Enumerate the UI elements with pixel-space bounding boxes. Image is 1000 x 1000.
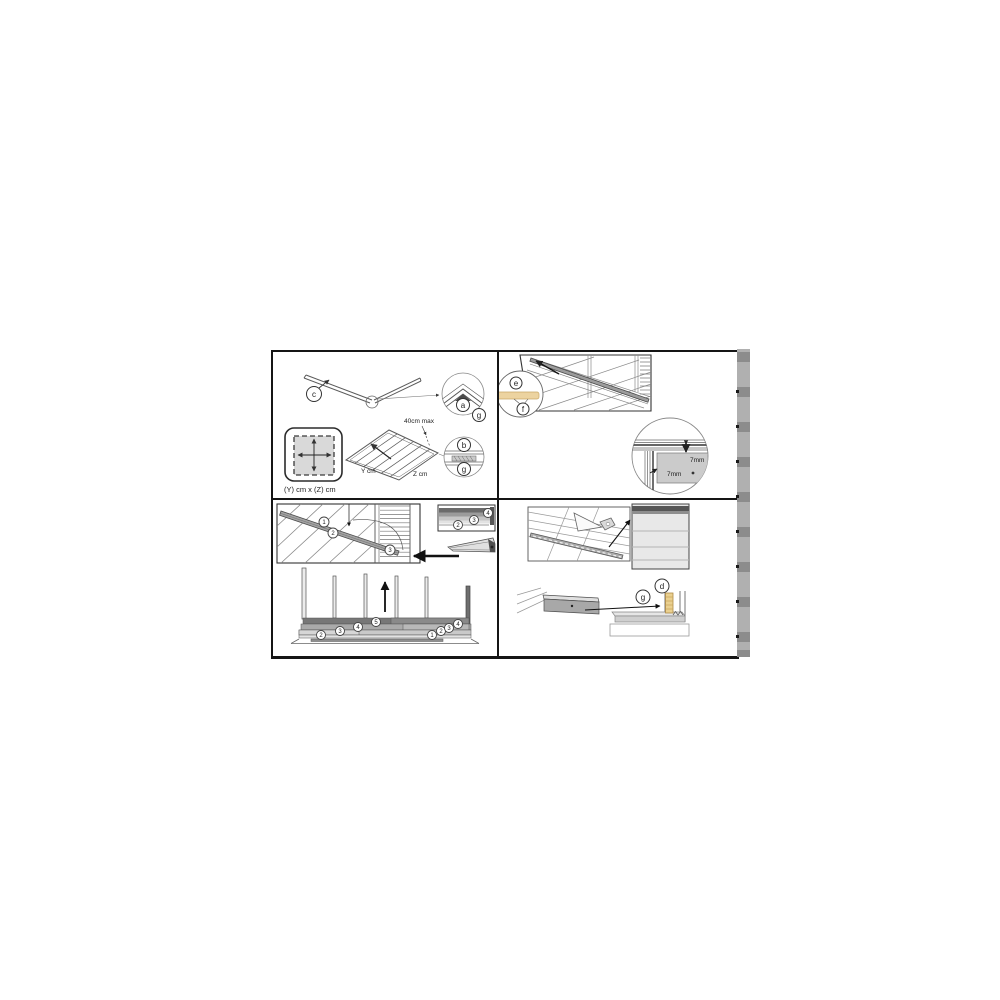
- panel-roof-batten-gap: e f: [499, 352, 737, 500]
- floor-frame-arrow: [371, 444, 391, 459]
- base-size-pictogram: [285, 428, 342, 481]
- edge-dot: [736, 425, 739, 428]
- fascia-board: [543, 595, 599, 614]
- left-step-2: 2: [317, 631, 326, 640]
- callout-g-upper: g: [473, 409, 486, 422]
- strip-step-3: 3: [470, 516, 479, 525]
- roof-apex-beams: [304, 375, 421, 403]
- edge-dot: [736, 390, 739, 393]
- bar-step-3: 3: [385, 545, 395, 555]
- left-step-4: 4: [354, 623, 363, 632]
- gap-side-label: 7mm: [667, 471, 681, 478]
- strip-step-4: 4: [484, 509, 493, 518]
- spacing-dashes: [426, 436, 430, 447]
- panel-saw-batten-svg: g d: [499, 500, 737, 656]
- panel-trim-and-layers: 1 2 3: [273, 500, 499, 656]
- manual-page: c a g: [0, 0, 1000, 1000]
- callout-g-lower: g: [458, 463, 471, 476]
- wedge-trim: [448, 538, 495, 552]
- gap-top-label: 7mm: [690, 457, 704, 464]
- callout-a: a: [457, 399, 470, 412]
- strip-step-2: 2: [454, 521, 463, 530]
- left-step-3: 3: [336, 627, 345, 636]
- edge-dot: [736, 460, 739, 463]
- callout-a-label: a: [461, 401, 466, 410]
- callout-g: g: [636, 590, 650, 604]
- right-step-3: 3: [445, 624, 454, 633]
- callout-b: b: [458, 439, 471, 452]
- panel-roof-batten-svg: e f: [499, 352, 737, 498]
- panel-trim-layers-svg: 1 2 3: [273, 500, 497, 656]
- bar-step-1: 1: [319, 517, 329, 527]
- callout-b-label: b: [462, 441, 467, 450]
- page-edge-strip: [737, 349, 750, 657]
- edge-dot: [736, 600, 739, 603]
- callout-d-label: d: [660, 582, 664, 591]
- leader-to-detail-b: [439, 454, 444, 456]
- callout-f: f: [517, 403, 529, 415]
- joist-spacing-label: 40cm max: [404, 418, 435, 425]
- bar-step-2: 2: [328, 528, 338, 538]
- frame-depth-label: Z cm: [413, 471, 427, 478]
- spacing-leader: [422, 426, 426, 435]
- callout-c: c: [307, 387, 322, 402]
- edge-dot: [736, 565, 739, 568]
- edge-square: [737, 650, 750, 657]
- panel-roof-apex-svg: c a g: [273, 352, 497, 498]
- frame-width-label: Y cm: [361, 468, 376, 475]
- callout-d: d: [655, 579, 669, 593]
- panel-saw-and-batten: g d: [499, 500, 737, 656]
- edge-dot: [736, 495, 739, 498]
- edge-square: [737, 352, 750, 362]
- wall-closeup: [632, 504, 689, 569]
- callout-g-upper-label: g: [477, 411, 481, 420]
- left-step-5: 5: [372, 618, 381, 627]
- callout-e-label: e: [514, 379, 519, 388]
- callout-g-label: g: [641, 593, 645, 602]
- edge-dot: [736, 530, 739, 533]
- callout-e: e: [510, 377, 522, 389]
- callout-g-lower-label: g: [462, 465, 466, 474]
- base-size-label: (Y) cm x (Z) cm: [284, 485, 336, 494]
- panel-roof-apex-and-floor: c a g: [273, 352, 499, 500]
- right-step-1: 1: [428, 631, 437, 640]
- callout-c-label: c: [312, 390, 316, 399]
- edge-dot: [736, 635, 739, 638]
- right-step-4: 4: [454, 620, 463, 629]
- instruction-figure: c a g: [271, 350, 739, 659]
